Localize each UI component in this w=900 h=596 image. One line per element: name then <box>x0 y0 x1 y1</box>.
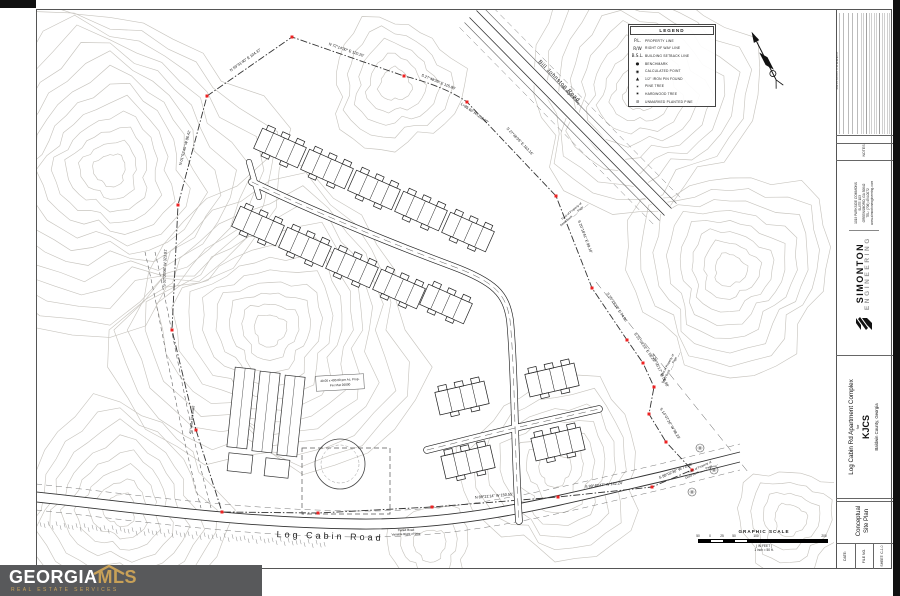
project-title: Log Cabin Rd Apartment Complex <box>848 379 856 475</box>
sheet-meta-number: SHEET: C-1.0 <box>874 544 890 568</box>
sheet-title-line2: Site Plan <box>864 509 872 533</box>
site-plan-sheet: Bill Johnston Road 60' Right of Way Log … <box>0 0 900 596</box>
revision-table <box>839 13 860 134</box>
sheet-meta-date: DATE: <box>837 544 853 568</box>
company-name: SIMONTON ENGINEERING <box>856 236 872 310</box>
company-divider <box>849 230 879 231</box>
watermark-tagline: REAL ESTATE SERVICES <box>11 587 119 593</box>
titleblock-section-line <box>836 498 893 499</box>
simonton-logo-icon <box>855 315 873 333</box>
revision-label: REVISION COMMENT <box>834 15 840 125</box>
georgia-mls-watermark: GEORGIAMLS REAL ESTATE SERVICES <box>0 565 262 596</box>
project-client: KJCS <box>861 415 872 439</box>
project-title-block: Log Cabin Rd Apartment Complex for KJCS … <box>837 357 891 497</box>
titleblock-section-line <box>836 355 893 356</box>
roof-icon <box>92 565 126 575</box>
sheet-border <box>36 9 892 569</box>
company-block: SIMONTON ENGINEERING 1019 PARKSIDE COMMO… <box>837 161 891 353</box>
project-location: Baldwin County, Georgia <box>874 403 879 450</box>
company-name-bottom: ENGINEERING <box>865 236 872 310</box>
sheet-title-block: Conceptual Site Plan <box>837 501 891 541</box>
company-address: 1019 PARKSIDE COMMONS SUITE 103 GREENSBO… <box>854 181 875 225</box>
scan-edge-artifact <box>893 0 900 596</box>
sheet-title-line1: Conceptual <box>856 506 864 536</box>
disclaimer-text-block <box>861 13 890 134</box>
watermark-georgia: GEORGIA <box>9 567 98 588</box>
scan-edge-artifact <box>0 0 36 8</box>
sheet-meta-file: FILE NO. <box>856 544 872 568</box>
